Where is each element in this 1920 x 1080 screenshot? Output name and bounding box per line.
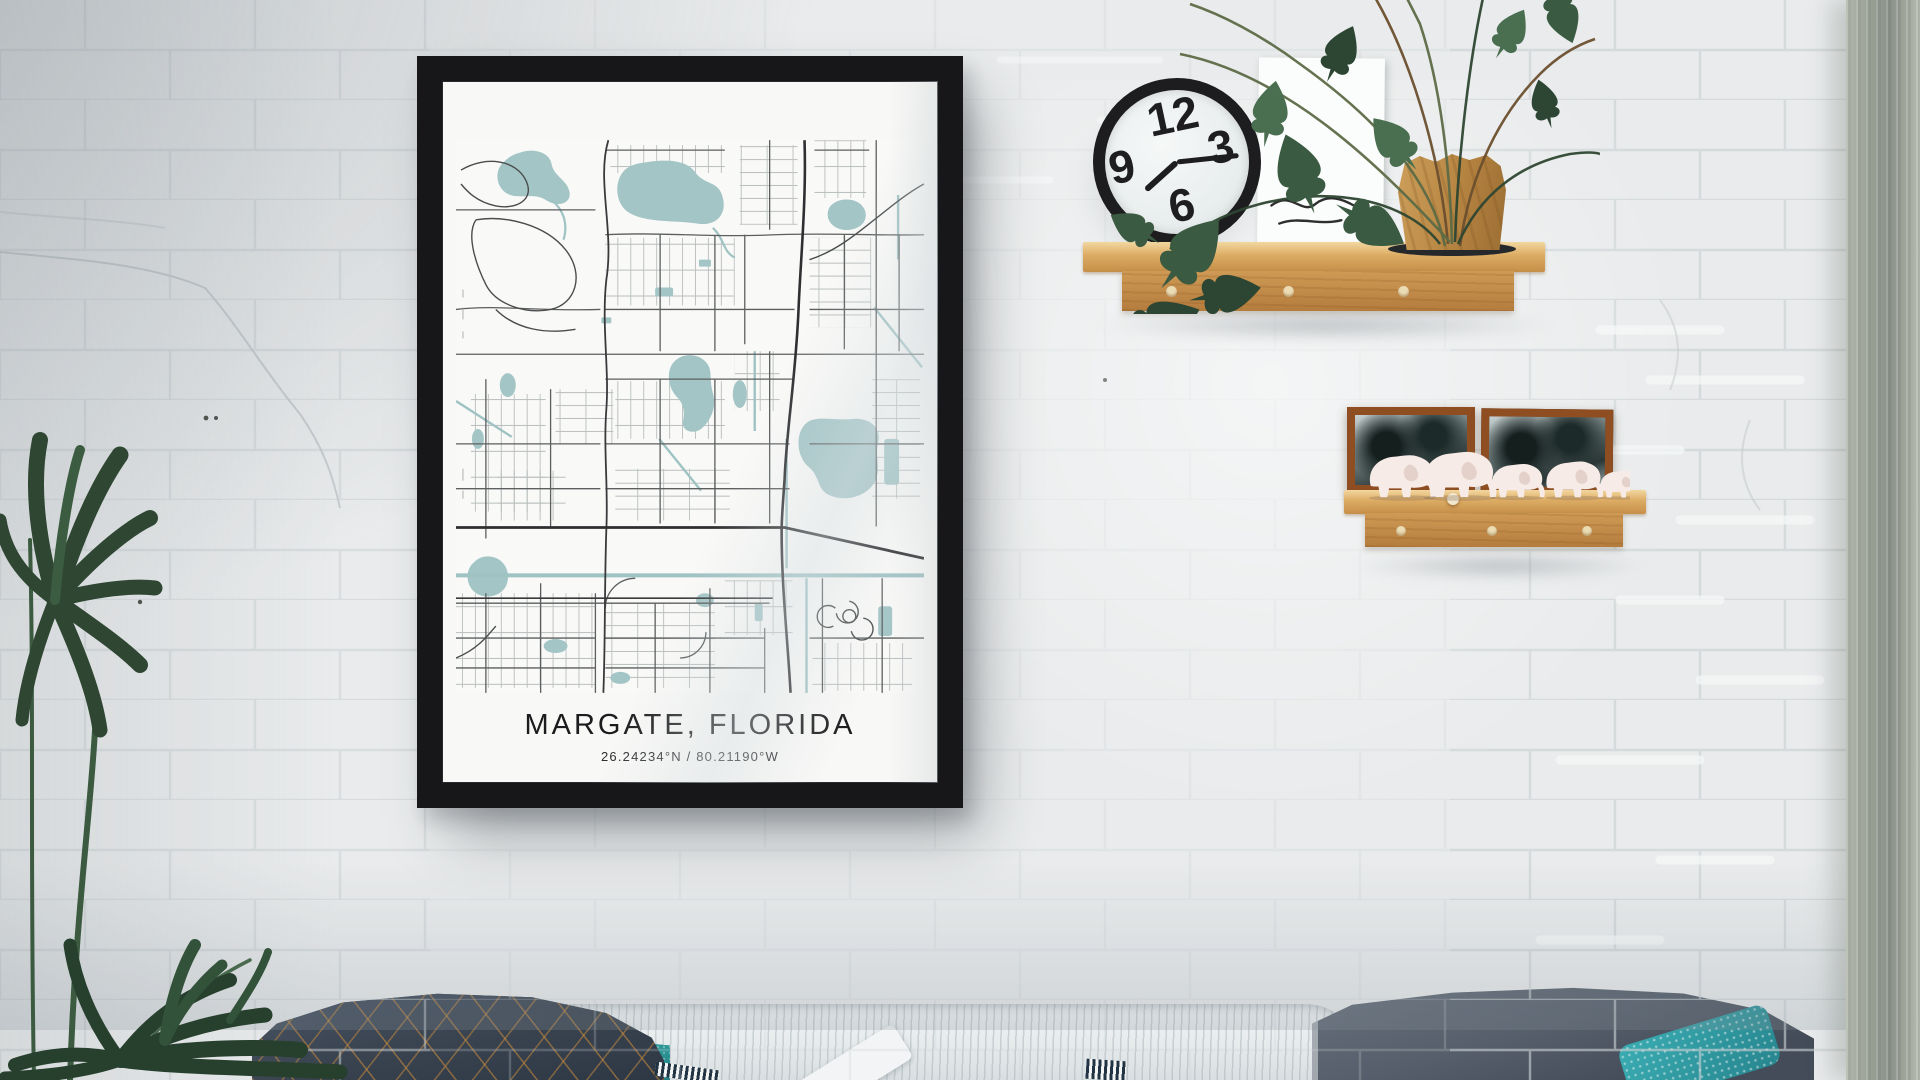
monstera-leaf (0, 440, 155, 730)
street-map (456, 139, 924, 694)
shelf-peg (1396, 526, 1406, 536)
monstera-plant (0, 400, 400, 1080)
monstera-leaf (5, 945, 340, 1078)
shelf-peg (1487, 526, 1497, 536)
arrowhead-plant (1040, 0, 1600, 314)
poster-coordinates: 26.24234°N / 80.21190°W (442, 749, 938, 764)
plant-leaves (1103, 0, 1587, 314)
city-map-artwork (456, 139, 924, 694)
curtain (1846, 0, 1920, 1080)
lower-shelf-shadow (1350, 552, 1650, 580)
elephant-figurines (1362, 438, 1630, 502)
room-scene: MARGATE, FLORIDA 26.24234°N / 80.21190°W… (0, 0, 1920, 1080)
framed-map-poster: MARGATE, FLORIDA 26.24234°N / 80.21190°W (417, 56, 963, 808)
shelf-peg (1582, 526, 1592, 536)
poster-title: MARGATE, FLORIDA (442, 709, 938, 742)
